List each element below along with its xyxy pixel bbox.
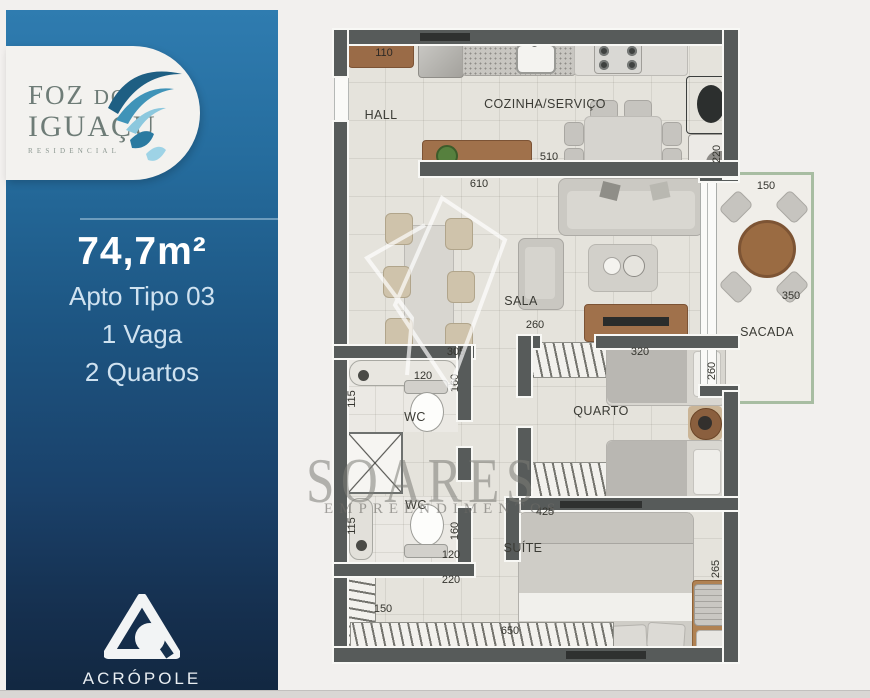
dim-quarto-width: 320	[631, 346, 649, 358]
logo-card: FOZ DO IGUAÇU RESIDENCIAL	[6, 46, 200, 180]
bedrooms-count: 2 Quartos	[6, 357, 278, 388]
logo-foz: FOZ	[28, 80, 85, 110]
dim-wc2-right: 160	[449, 522, 461, 540]
room-label-quarto: QUARTO	[573, 404, 628, 418]
room-label-hall: HALL	[365, 108, 398, 122]
dim-kitchen-right: 220	[711, 145, 723, 163]
divider-line	[80, 218, 278, 220]
dim-closet-mid: 220	[442, 574, 460, 586]
dim-closet-bottom: 650	[501, 625, 519, 637]
dim-sala-door: 260	[526, 319, 544, 331]
dim-sacada-depth: 350	[782, 290, 800, 302]
water-splash-icon	[102, 58, 186, 168]
apartment-type: Apto Tipo 03	[6, 281, 278, 312]
room-label-sacada: SACADA	[740, 325, 794, 339]
dim-sacada-width: 150	[757, 180, 775, 192]
parking-spaces: 1 Vaga	[6, 319, 278, 350]
dim-wc2-left: 115	[346, 517, 358, 535]
dim-hall-shelf: 110	[375, 47, 393, 59]
room-label-wc1: WC	[404, 410, 426, 424]
dim-closet-left: 150	[374, 603, 392, 615]
room-label-kitchen: COZINHA/SERVIÇO	[484, 97, 606, 111]
dim-quarto-depth: 260	[706, 362, 718, 380]
apartment-specs: 74,7m² Apto Tipo 03 1 Vaga 2 Quartos	[6, 230, 278, 388]
watermark-subtitle: EMPREENDIMENTOS	[324, 501, 561, 518]
dim-wc2-bottom: 120	[442, 549, 460, 561]
dim-suite-right: 265	[710, 560, 722, 578]
dim-kitchen-width: 510	[540, 151, 558, 163]
acropole-triangle-icon	[104, 594, 180, 660]
soares-diamond-watermark	[355, 185, 525, 400]
builder-logo: ACRÓPOLE	[6, 594, 278, 689]
sidebar: FOZ DO IGUAÇU RESIDENCIAL 74,7m² Apto Ti…	[6, 10, 278, 697]
room-label-suite: SUÍTE	[504, 541, 543, 555]
builder-name: ACRÓPOLE	[6, 669, 278, 689]
apartment-area: 74,7m²	[6, 230, 278, 274]
